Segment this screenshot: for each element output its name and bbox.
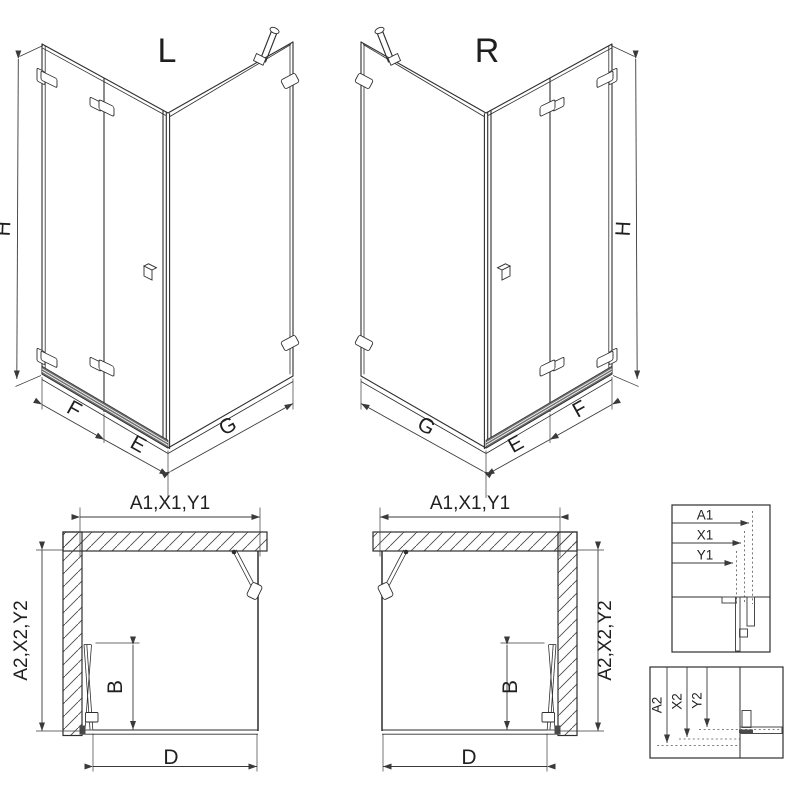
dim-label-opening-right-plan: D (461, 746, 476, 769)
iso-left-geometry (16, 26, 300, 498)
detail-label-x2: X2 (670, 693, 685, 710)
dim-label-door-right-plan: B (499, 680, 522, 694)
dim-label-door-left-plan: B (104, 680, 127, 694)
dim-label-opening-left-plan: D (163, 746, 178, 769)
detail-height-frame (650, 667, 783, 758)
technical-drawing-canvas: L H F E G R H F E G A1,X1,Y1 A2,X2,Y2 B … (0, 0, 800, 800)
wall-side-right-plan (558, 532, 577, 736)
detail-label-a2: A2 (650, 697, 665, 714)
version-label-left: L (158, 32, 177, 70)
wall-side-left-plan (63, 532, 82, 736)
wall-top-right-plan (373, 532, 577, 551)
wall-top-left-plan (63, 532, 267, 551)
dim-label-depth-right-plan: A2,X2,Y2 (595, 600, 616, 680)
detail-label-a1: A1 (697, 508, 714, 523)
plan-view-right: A1,X1,Y1 A2,X2,Y2 B D (373, 493, 616, 772)
iso-right-geometry (355, 26, 639, 498)
iso-view-left: L H F E G (0, 26, 299, 498)
dim-label-side-right: G (413, 412, 438, 440)
dim-label-width-left-plan: A1,X1,Y1 (130, 493, 210, 514)
technical-drawing-page: L H F E G R H F E G A1,X1,Y1 A2,X2,Y2 B … (0, 0, 800, 800)
version-label-right: R (475, 32, 500, 70)
dim-label-width-right-plan: A1,X1,Y1 (430, 493, 510, 514)
dim-label-height-right: H (612, 220, 636, 236)
dim-label-side-left: G (215, 412, 240, 440)
floor-profile-section (739, 711, 782, 734)
iso-view-right: R H F E G (355, 26, 639, 498)
detail-label-y2: Y2 (690, 692, 705, 709)
detail-height-adjustment: A2 X2 Y2 (650, 667, 784, 758)
detail-label-x1: X1 (697, 528, 714, 543)
plan-view-left: A1,X1,Y1 A2,X2,Y2 B D (11, 493, 267, 772)
dim-label-height-left: H (0, 220, 15, 236)
wall-profile-section (722, 597, 755, 651)
dim-label-depth-left-plan: A2,X2,Y2 (11, 600, 32, 680)
detail-label-y1: Y1 (697, 548, 714, 563)
detail-width-frame (672, 505, 770, 652)
detail-width-adjustment: A1 X1 Y1 (672, 505, 770, 652)
